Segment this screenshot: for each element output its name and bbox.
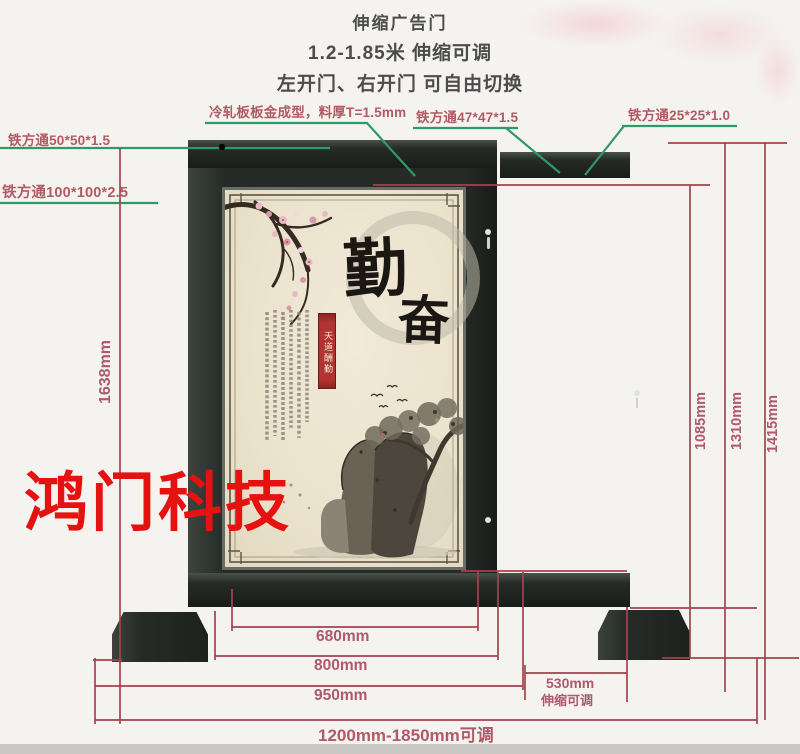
- callout-cold-rolled: 冷轧板板金成型，料厚T=1.5mm: [209, 101, 406, 121]
- dim-530: 530mm: [546, 675, 594, 691]
- leader-dot: [219, 144, 225, 150]
- title-product: 伸缩广告门: [0, 9, 800, 34]
- dim-680: 680mm: [316, 628, 369, 646]
- dim-1085: 1085mm: [693, 392, 709, 450]
- dim-800: 800mm: [314, 657, 367, 675]
- callout-tube-47: 铁方通47*47*1.5: [416, 106, 518, 126]
- dim-1415: 1415mm: [765, 395, 781, 453]
- callout-tube-25: 铁方通25*25*1.0: [628, 104, 730, 124]
- gate-product-diagram: 勤 奋 天道酬勤: [0, 0, 800, 754]
- callout-tube-100: 铁方通100*100*2.5: [2, 181, 128, 202]
- dim-1310: 1310mm: [729, 392, 745, 450]
- callout-tube-50: 铁方通50*50*1.5: [8, 129, 110, 149]
- title-switch: 左开门、右开门 可自由切换: [0, 69, 800, 96]
- watermark-text: 鸿门科技: [24, 452, 292, 544]
- dim-950: 950mm: [314, 687, 367, 705]
- dim-1638: 1638mm: [97, 340, 115, 404]
- dim-total-width: 1200mm-1850mm可调: [318, 721, 494, 746]
- title-range: 1.2-1.85米 伸缩可调: [0, 38, 800, 65]
- dim-530-note: 伸缩可调: [541, 690, 593, 709]
